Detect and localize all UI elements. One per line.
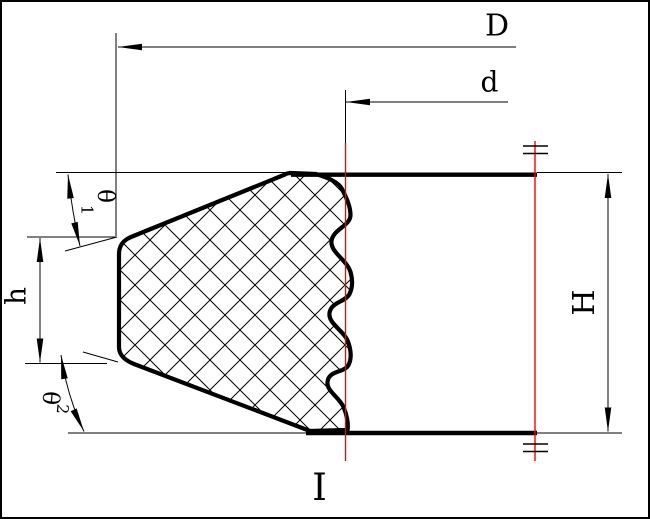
dim-h-label: h <box>0 287 33 305</box>
theta1-symbol: θ <box>92 189 118 203</box>
seal-cross-section-drawing: D d H h θ 1 θ 2 I <box>0 0 650 519</box>
dim-D-label: D <box>485 9 509 44</box>
dim-d-label: d <box>481 66 499 99</box>
theta2-subscript: 2 <box>53 403 73 415</box>
section-mark-label: I <box>312 466 327 509</box>
theta1-subscript: 1 <box>78 205 97 215</box>
dim-H-label: H <box>567 289 602 315</box>
drawing-svg: D d H h θ 1 θ 2 I <box>0 0 650 519</box>
